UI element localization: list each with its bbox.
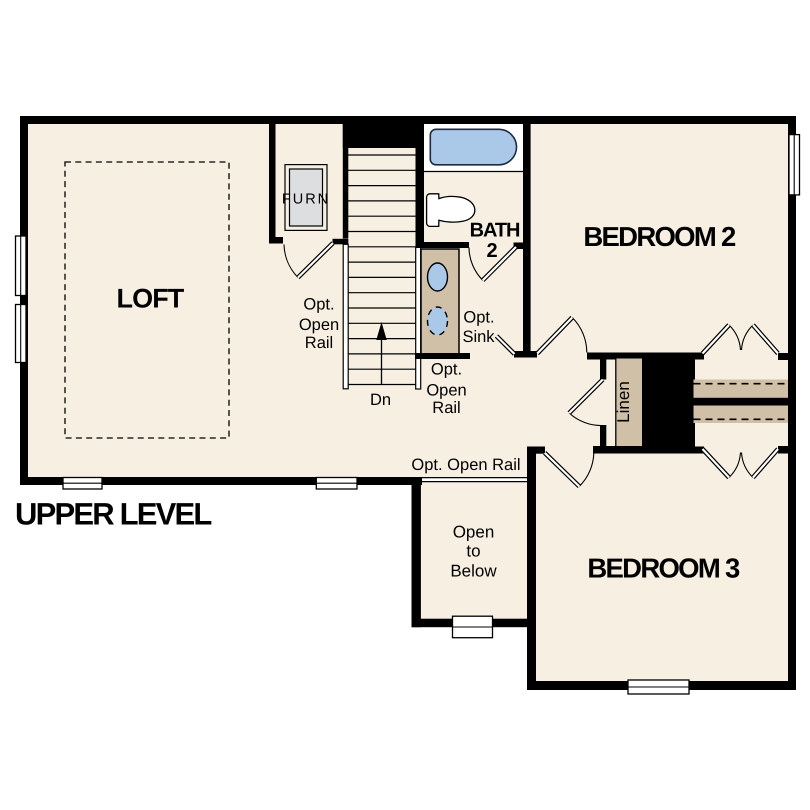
svg-text:Opt.: Opt. — [431, 361, 462, 379]
svg-text:Open: Open — [453, 522, 495, 541]
svg-text:Open: Open — [299, 316, 339, 334]
svg-text:Opt.: Opt. — [463, 309, 494, 327]
svg-text:BATH: BATH — [470, 220, 520, 242]
svg-text:Open: Open — [426, 382, 466, 400]
svg-text:UPPER LEVEL: UPPER LEVEL — [15, 497, 211, 532]
svg-text:2: 2 — [486, 240, 497, 262]
svg-text:Dn: Dn — [370, 391, 391, 409]
svg-text:to: to — [466, 542, 480, 561]
svg-text:Rail: Rail — [432, 399, 460, 417]
svg-text:LOFT: LOFT — [117, 284, 185, 314]
svg-text:FURN: FURN — [282, 191, 330, 207]
svg-text:Rail: Rail — [305, 334, 333, 352]
svg-text:Opt.: Opt. — [303, 296, 334, 314]
svg-text:BEDROOM 2: BEDROOM 2 — [583, 221, 736, 252]
svg-text:BEDROOM 3: BEDROOM 3 — [587, 553, 740, 584]
svg-text:Sink: Sink — [462, 328, 495, 346]
svg-text:Below: Below — [450, 561, 497, 580]
svg-text:Opt. Open Rail: Opt. Open Rail — [411, 456, 520, 474]
svg-text:Linen: Linen — [614, 381, 633, 423]
